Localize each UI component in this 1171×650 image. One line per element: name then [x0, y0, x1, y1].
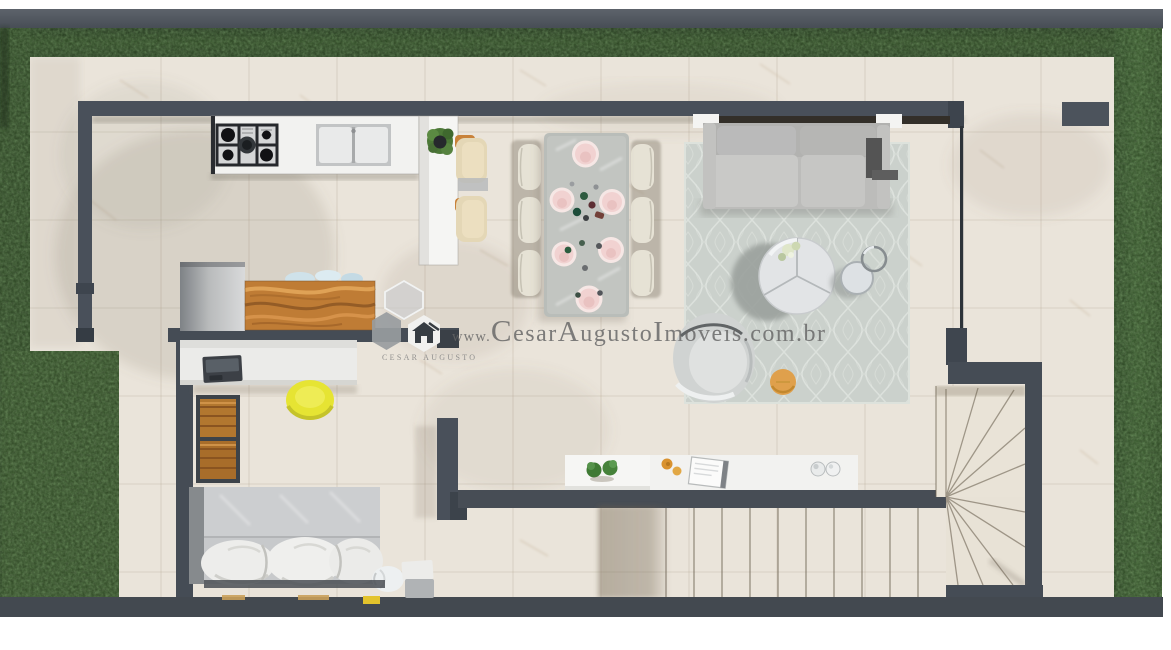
svg-text:CESAR AUGUSTO: CESAR AUGUSTO	[382, 353, 477, 362]
